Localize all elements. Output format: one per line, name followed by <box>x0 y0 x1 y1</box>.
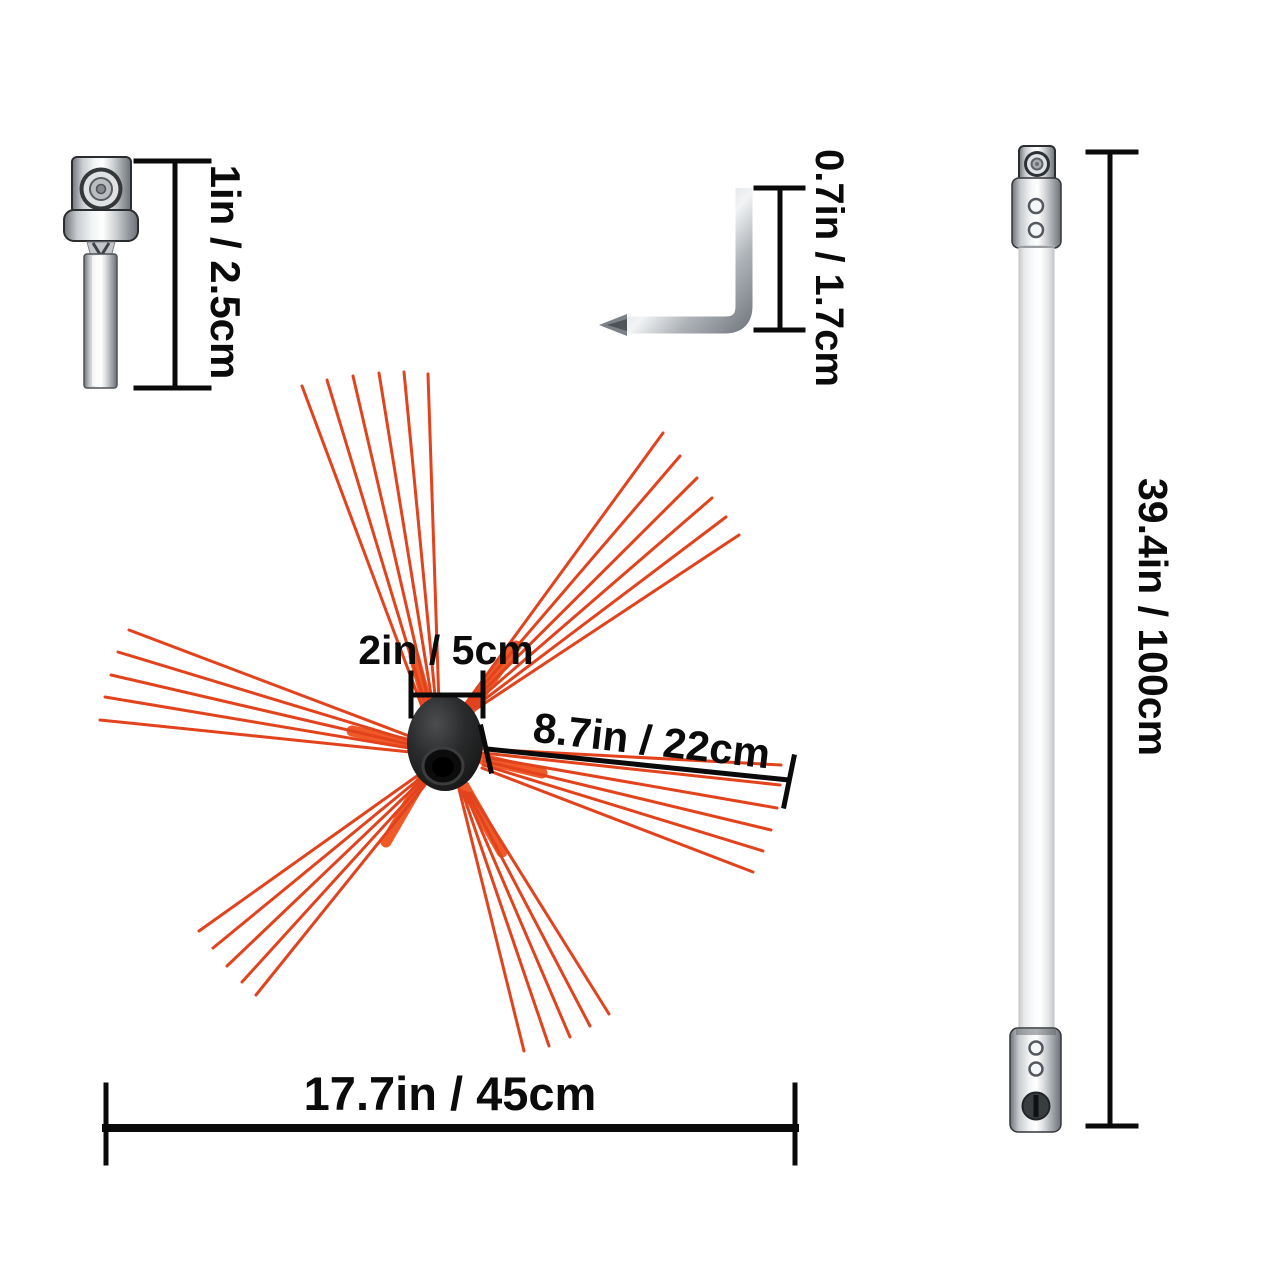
rod-socket-hole <box>1030 1063 1043 1076</box>
overall-width-dimension: 17.7in / 45cm <box>106 1067 795 1163</box>
hex-key-length-dimension: 0.7in / 1.7cm <box>756 149 851 387</box>
bristle-bundle-bottom <box>459 789 609 1051</box>
rod-collar-hole <box>1029 199 1043 213</box>
adapter-collar <box>64 210 138 241</box>
drill-adapter-illustration <box>64 157 138 388</box>
bristle-strand <box>482 768 753 872</box>
adapter-shank <box>84 254 117 388</box>
bristle-length-dimension: 8.7in / 22cm <box>481 704 794 806</box>
hex-key-length-label: 0.7in / 1.7cm <box>807 149 851 387</box>
bristle-strand <box>105 697 409 748</box>
adapter-socket-pin <box>97 185 106 194</box>
rod-shaft <box>1019 246 1054 1032</box>
bristle-strand <box>471 793 609 1014</box>
hex-key-illustration <box>599 188 744 336</box>
diagram-canvas: 1in / 2.5cm 0.7in / 1.7cm <box>0 0 1280 1280</box>
rod-collar-hole <box>1029 223 1043 237</box>
brush-hub-socket-bore <box>432 757 454 777</box>
extension-rod-illustration <box>1010 146 1061 1132</box>
bristle-strand <box>462 791 549 1046</box>
rod-top-pin <box>1035 162 1039 166</box>
overall-width-label: 17.7in / 45cm <box>304 1067 597 1120</box>
adapter-shank-highlight <box>92 256 99 386</box>
adapter-height-dimension: 1in / 2.5cm <box>136 161 249 388</box>
bristle-strand <box>111 675 408 744</box>
rod-length-dimension: 39.4in / 100cm <box>1088 152 1176 1126</box>
hex-key-body <box>624 188 744 325</box>
bristle-strand <box>473 517 726 708</box>
bristle-strand <box>465 792 570 1037</box>
bristle-bundle-lower-left <box>199 776 425 995</box>
hub-width-label: 2in / 5cm <box>358 627 533 673</box>
bristle-strand <box>227 781 421 966</box>
rod-socket-hole <box>1030 1042 1043 1055</box>
brush-hub <box>407 695 483 791</box>
brush-head-illustration <box>100 372 781 1051</box>
rod-length-label: 39.4in / 100cm <box>1130 478 1176 756</box>
bristle-strand <box>476 535 739 709</box>
product-dimension-diagram: 1in / 2.5cm 0.7in / 1.7cm <box>0 0 1280 1280</box>
adapter-height-label: 1in / 2.5cm <box>202 165 249 380</box>
rod-socket-seam <box>1016 1028 1056 1035</box>
